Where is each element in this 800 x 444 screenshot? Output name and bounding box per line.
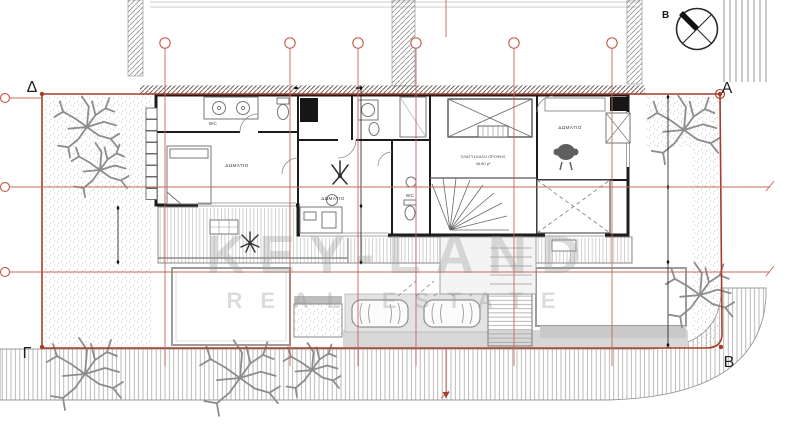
entrance-steps: [488, 294, 532, 346]
low-wall: [294, 296, 342, 304]
lower-level-structures: [172, 268, 688, 347]
retaining-wall: [540, 326, 686, 338]
shutter-stack: [146, 108, 157, 200]
party-wall-hatch-left: [128, 0, 143, 76]
corner-label-top-left: Δ: [27, 79, 38, 96]
floor-plan-drawing: B Δ A Γ B ΔΩΜΑΤΙΟ ΔΩΜΑΤΙΟ ΔΩΜΑΤΙΟ WC WC …: [0, 0, 800, 444]
room-label-wc-middle: WC: [406, 193, 415, 198]
deck-table: [552, 240, 576, 251]
compass-north-icon: B: [662, 9, 718, 50]
room-label-landing-area: 46.80 μ²: [476, 161, 491, 166]
lower-terrace-left: [172, 268, 290, 345]
compass-label: B: [662, 10, 669, 21]
car-icon: [424, 300, 480, 327]
garden-left: [44, 96, 152, 346]
lower-terrace-right: [536, 268, 686, 326]
room-label-bedroom-middle: ΔΩΜΑΤΙΟ: [321, 196, 345, 201]
floor-plan-page: B Δ A Γ B ΔΩΜΑΤΙΟ ΔΩΜΑΤΙΟ ΔΩΜΑΤΙΟ WC WC …: [0, 0, 800, 444]
party-wall-hatch-right: [627, 0, 642, 84]
corner-label-bottom-right: B: [724, 354, 735, 371]
room-label-wc-left: WC: [209, 121, 218, 126]
planter-bed: [294, 304, 342, 337]
duct-block: [300, 98, 318, 122]
entry-porch: [440, 237, 536, 294]
room-label-landing: ΠΛΑΤΥΣΚΑΛΟ ΟΡΟΦΗΣ: [460, 154, 506, 159]
car-icon: [352, 300, 408, 327]
room-label-bedroom-left: ΔΩΜΑΤΙΟ: [225, 163, 249, 168]
road-hatch-top-right: [724, 0, 766, 82]
adjacent-structures-top: [128, 0, 766, 86]
garden-right-strip: [692, 148, 718, 346]
corner-label-bottom-left: Γ: [23, 345, 32, 362]
shaft-x: [606, 113, 630, 143]
room-label-bedroom-right: ΔΩΜΑΤΙΟ: [558, 125, 582, 130]
corner-label-top-right: A: [722, 80, 733, 97]
void-opening: [537, 180, 610, 233]
duct-block: [610, 97, 628, 111]
